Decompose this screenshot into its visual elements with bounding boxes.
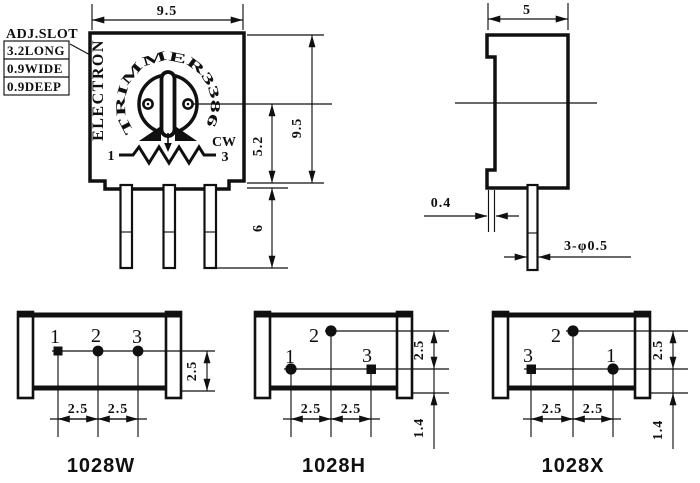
dim-pin-diameter-value: 3-φ0.5 <box>564 239 608 254</box>
dim-pitch-ab-value: 2.5 <box>301 402 322 417</box>
dim-pin-diameter: 3-φ0.5 <box>504 239 631 257</box>
callout-title: ADJ.SLOT <box>6 27 78 42</box>
front-pin-2 <box>164 185 176 268</box>
dim-front-width: 9.5 <box>92 4 243 30</box>
rotor-eyelet-right-dot <box>187 103 190 106</box>
cw-rotation-label: CW <box>212 135 236 150</box>
model-label: 1028H <box>302 455 366 477</box>
callout-row-wide: 0.9WIDE <box>7 61 63 76</box>
callout-row-long: 3.2LONG <box>7 43 65 58</box>
footprint-1028X: 3 2 1 2.5 1.4 2.5 2.5 1028X <box>493 312 688 477</box>
pin-2-number: 2 <box>91 325 101 347</box>
pin-2-pad <box>325 325 336 336</box>
dim-front-height-value: 9.5 <box>290 118 305 139</box>
front-view: ADJ.SLOT 3.2LONG 0.9WIDE 0.9DEEP ELECTRO… <box>4 4 332 268</box>
flange-right <box>635 312 650 398</box>
front-pin-3 <box>205 185 217 268</box>
adjustment-slot <box>162 72 175 136</box>
dim-pin-length: 6 <box>216 188 288 268</box>
side-pin <box>528 185 538 270</box>
rotor-eyelet-left-dot <box>147 103 150 106</box>
terminal-3-label: 3 <box>222 150 229 165</box>
dim-pitch-ab-value: 2.5 <box>542 402 563 417</box>
side-view: 5 0.4 3-φ0.5 <box>424 3 631 270</box>
pin-1-number: 1 <box>50 326 60 348</box>
pin-2-pad <box>567 325 578 336</box>
dim-pitch-bc-value: 2.5 <box>341 402 362 417</box>
flange-left <box>18 312 33 398</box>
dim-cover-thickness: 0.4 <box>424 190 519 232</box>
pin-1-number: 1 <box>606 345 616 367</box>
front-pins <box>121 185 217 268</box>
pin-2-number: 2 <box>309 325 319 347</box>
dim-row-height-value: 2.5 <box>185 361 200 382</box>
dim-front-height: 9.5 <box>247 35 324 183</box>
dim-center-to-base-value: 5.2 <box>251 136 266 157</box>
trimmer-dimension-drawing: ADJ.SLOT 3.2LONG 0.9WIDE 0.9DEEP ELECTRO… <box>0 0 700 483</box>
technical-drawing-page: ADJ.SLOT 3.2LONG 0.9WIDE 0.9DEEP ELECTRO… <box>0 0 700 483</box>
dim-center-to-base: 5.2 <box>251 105 272 183</box>
callout-row-deep: 0.9DEEP <box>7 79 61 94</box>
pin-3-number: 3 <box>523 345 533 367</box>
dim-side-width: 5 <box>488 3 568 30</box>
flange-left <box>493 312 508 398</box>
terminal-1-label: 1 <box>108 149 115 164</box>
dim-pitch-ab-value: 2.5 <box>68 402 89 417</box>
dim-front-width-value: 9.5 <box>157 4 178 19</box>
dim-base-gap-value: 1.4 <box>651 420 666 441</box>
model-label: 1028W <box>67 455 135 477</box>
pin-1-number: 1 <box>285 346 295 368</box>
flange-right <box>166 312 181 398</box>
pin-3-number: 3 <box>132 326 142 348</box>
dim-pin-length-value: 6 <box>251 224 266 232</box>
dim-cover-value: 0.4 <box>431 196 452 211</box>
pin-2-pad <box>93 346 104 357</box>
dim-row-gap-value: 2.5 <box>412 340 427 361</box>
dim-pitch-bc-value: 2.5 <box>583 402 604 417</box>
pin-2-number: 2 <box>551 325 561 347</box>
flange-left <box>255 312 270 398</box>
footprint-1028H: 1 2 3 2.5 1.4 2.5 2.5 1028H <box>255 312 449 477</box>
front-pin-1 <box>121 185 133 268</box>
pin-3-number: 3 <box>362 345 372 367</box>
brand-text: ELECTRON <box>90 39 107 141</box>
side-body-outline <box>487 35 568 188</box>
footprint-1028W: 1 2 3 2.5 2.5 2.5 1028W <box>18 312 215 477</box>
dim-side-width-value: 5 <box>523 3 531 18</box>
dim-row-gap-value: 2.5 <box>651 340 666 361</box>
model-label: 1028X <box>542 455 605 477</box>
dim-pitch-bc-value: 2.5 <box>108 402 129 417</box>
flange-right <box>397 312 412 398</box>
dim-base-gap-value: 1.4 <box>412 418 427 439</box>
